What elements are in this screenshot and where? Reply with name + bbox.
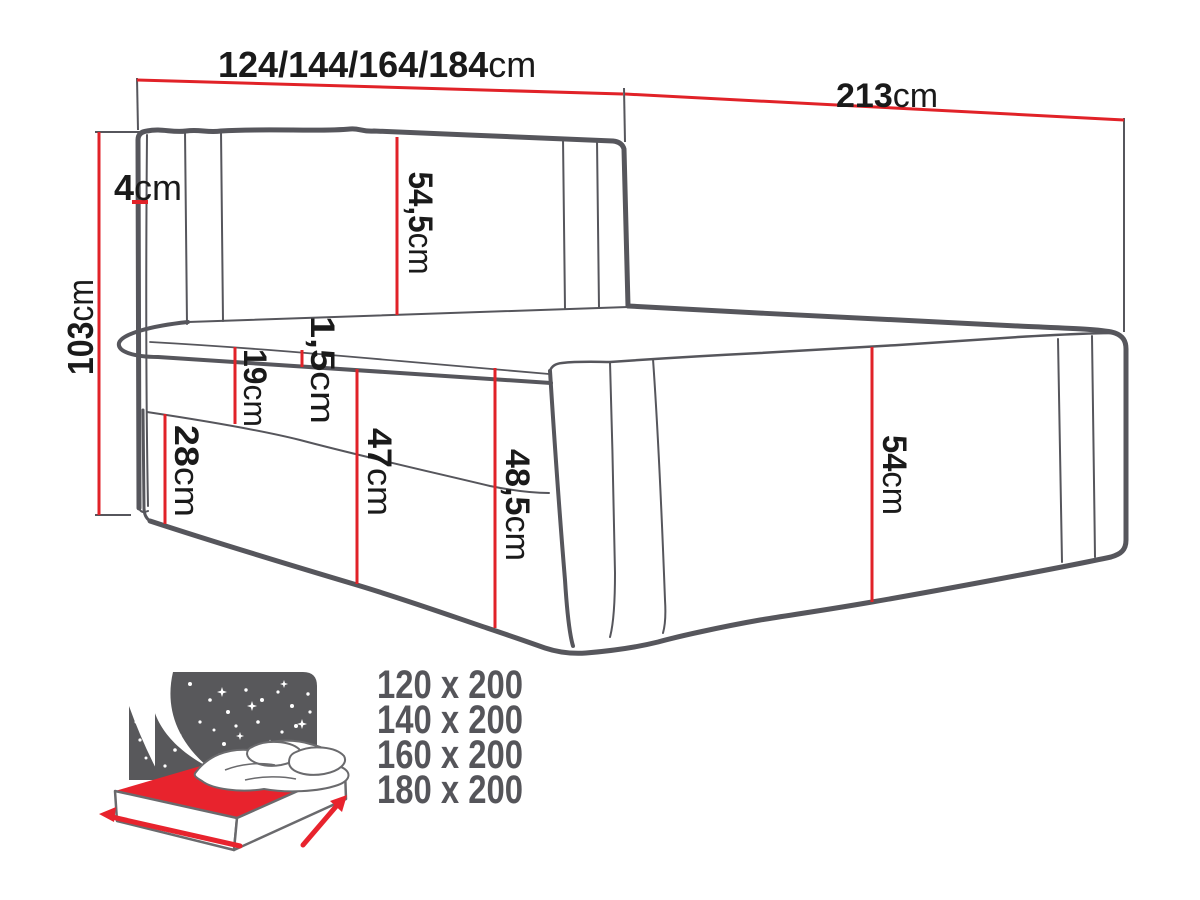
base-top-edge (147, 412, 549, 493)
headboard-seam-left-2 (221, 131, 223, 321)
dim-topper-label: 1,5cm (303, 316, 341, 424)
icon-pillow-right (289, 747, 345, 775)
dim-front-height-label: 47cm (360, 428, 398, 516)
corner-cushion-seam-1 (610, 362, 615, 637)
mattress-back-edge (188, 307, 628, 322)
dim-height-label: 103cm (60, 279, 101, 375)
arrow-width-head-icon (99, 807, 116, 822)
bed-outer-contour (150, 306, 1126, 653)
headboard-seam-right-2 (597, 140, 599, 308)
corner-cushion-seam-2 (653, 359, 665, 633)
side-panel-seam-2 (1092, 336, 1095, 557)
dim-length-label: 213cm (836, 77, 938, 115)
side-panel-seam-1 (1058, 339, 1062, 562)
dimension-labels: 124/144/164/184cm 213cm 103cm 4cm 54,5cm… (60, 44, 938, 561)
dim-headboard-thickness-label: 4cm (114, 167, 182, 208)
tick-width-right-length-left (624, 88, 625, 142)
bed-dimensions-diagram: 124/144/164/184cm 213cm 103cm 4cm 54,5cm… (0, 0, 1200, 900)
bed-size-icon (99, 672, 349, 850)
diagram-canvas: 124/144/164/184cm 213cm 103cm 4cm 54,5cm… (0, 0, 1200, 900)
dim-width-label: 124/144/164/184cm (218, 44, 536, 85)
size-options-list: 120 x 200 140 x 200 160 x 200 180 x 200 (377, 663, 523, 812)
dim-side-height-label: 54cm (875, 435, 913, 515)
side-panel-top-edge (550, 333, 1115, 371)
dim-base-label: 28cm (167, 425, 205, 517)
size-option-4: 180 x 200 (377, 768, 523, 812)
headboard-seam-left-1 (185, 131, 187, 324)
dimension-ticks (95, 78, 1124, 515)
dim-mattress-label: 19cm (237, 349, 273, 427)
dim-foot-height-label: 48,5cm (498, 449, 536, 561)
tick-width-left (137, 78, 138, 130)
dim-headboard-panel-label: 54,5cm (401, 172, 439, 275)
corner-cushion-left-edge (550, 371, 573, 646)
headboard-seam-right-1 (563, 138, 565, 309)
